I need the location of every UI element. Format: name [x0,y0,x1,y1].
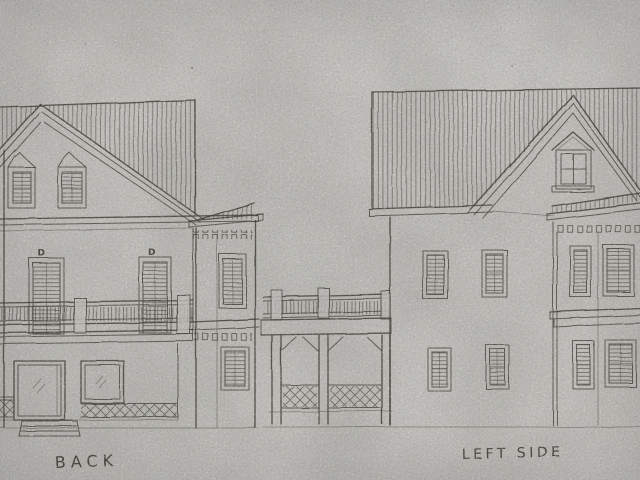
blueprint-paper: D D [0,0,640,480]
elevation-drawing: D D [0,0,640,480]
paper-grain-light [0,0,640,480]
